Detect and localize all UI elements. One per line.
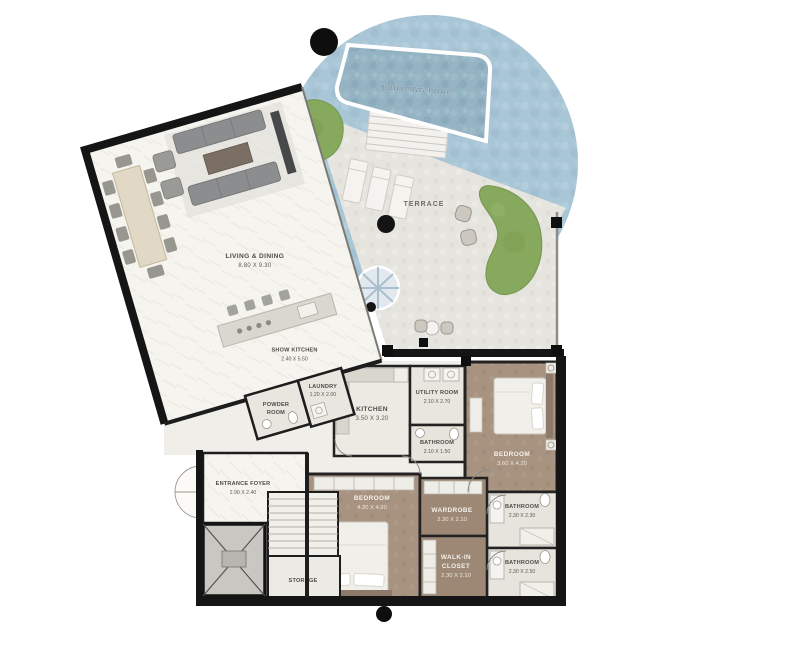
bathroom-bottom-dims: 2.30 X 2.50 <box>509 569 536 575</box>
laundry-dims: 1.20 X 2.00 <box>310 392 337 398</box>
bathroom-top-dims: 2.10 X 1.50 <box>424 449 451 455</box>
powder-room-label-2: ROOM <box>267 410 285 416</box>
bedroom-left-label: BEDROOM <box>354 495 390 502</box>
room-bathroom-mid: BATHROOM 2.30 X 2.30 <box>487 492 557 548</box>
entrance-foyer-dims: 2.90 X 2.40 <box>230 490 257 496</box>
walk-in-closet-dims: 2.30 X 2.10 <box>441 573 471 579</box>
bedroom-right-label: BEDROOM <box>494 451 530 458</box>
show-kitchen-label: SHOW KITCHEN <box>271 348 317 354</box>
bed-right <box>494 374 553 438</box>
utility-dims: 2.10 X 2.70 <box>424 399 451 405</box>
kitchen-dims: 3.50 X 3.20 <box>356 416 389 422</box>
stairs <box>268 492 338 556</box>
floor-plan-drawing: SWIMMING POOL TERRACE <box>0 0 796 660</box>
bathroom-mid-label: BATHROOM <box>505 504 539 510</box>
bathroom-mid-dims: 2.30 X 2.30 <box>509 513 536 519</box>
wardrobe-label: WARDROBE <box>431 507 473 514</box>
wardrobe-strip <box>314 477 414 490</box>
terrace-label: TERRACE <box>404 201 445 208</box>
walk-in-closet-label-1: WALK-IN <box>441 554 471 561</box>
utility-label: UTILITY ROOM <box>416 390 459 396</box>
terrace-planter-dot <box>377 215 395 233</box>
floor-plan: SWIMMING POOL TERRACE <box>0 0 796 660</box>
laundry-label: LAUNDRY <box>309 384 338 390</box>
bathroom-bottom-label: BATHROOM <box>505 560 539 566</box>
powder-room-label-1: POWDER <box>263 402 289 408</box>
room-bathroom-top: BATHROOM 2.10 X 1.50 <box>410 425 465 462</box>
bedroom-left-dims: 4.20 X 4.20 <box>357 505 387 511</box>
storage-label: STORAGE <box>289 578 318 584</box>
living-dining-dims: 8.80 X 9.30 <box>238 263 271 269</box>
entrance-foyer-label: ENTRANCE FOYER <box>216 481 271 487</box>
walk-in-closet-label-2: CLOSET <box>442 563 470 570</box>
bathroom-top-label: BATHROOM <box>420 440 454 446</box>
bedroom-right-dims: 3.60 X 4.20 <box>497 461 527 467</box>
dresser <box>470 398 482 432</box>
elevator <box>203 524 265 596</box>
room-wardrobe: WARDROBE 2.30 X 2.10 <box>420 478 487 536</box>
room-utility: UTILITY ROOM 2.10 X 2.70 <box>410 366 465 425</box>
room-storage: STORAGE <box>268 556 340 598</box>
kitchen-label: KITCHEN <box>356 406 388 413</box>
living-dining-label: LIVING & DINING <box>225 253 284 260</box>
show-kitchen-dims: 2.40 X 5.50 <box>281 357 308 363</box>
room-walk-in-closet: WALK-IN CLOSET 2.30 X 2.10 <box>420 536 487 598</box>
wardrobe-dims: 2.30 X 2.10 <box>437 517 467 523</box>
room-bathroom-bottom: BATHROOM 2.30 X 2.50 <box>487 548 557 602</box>
